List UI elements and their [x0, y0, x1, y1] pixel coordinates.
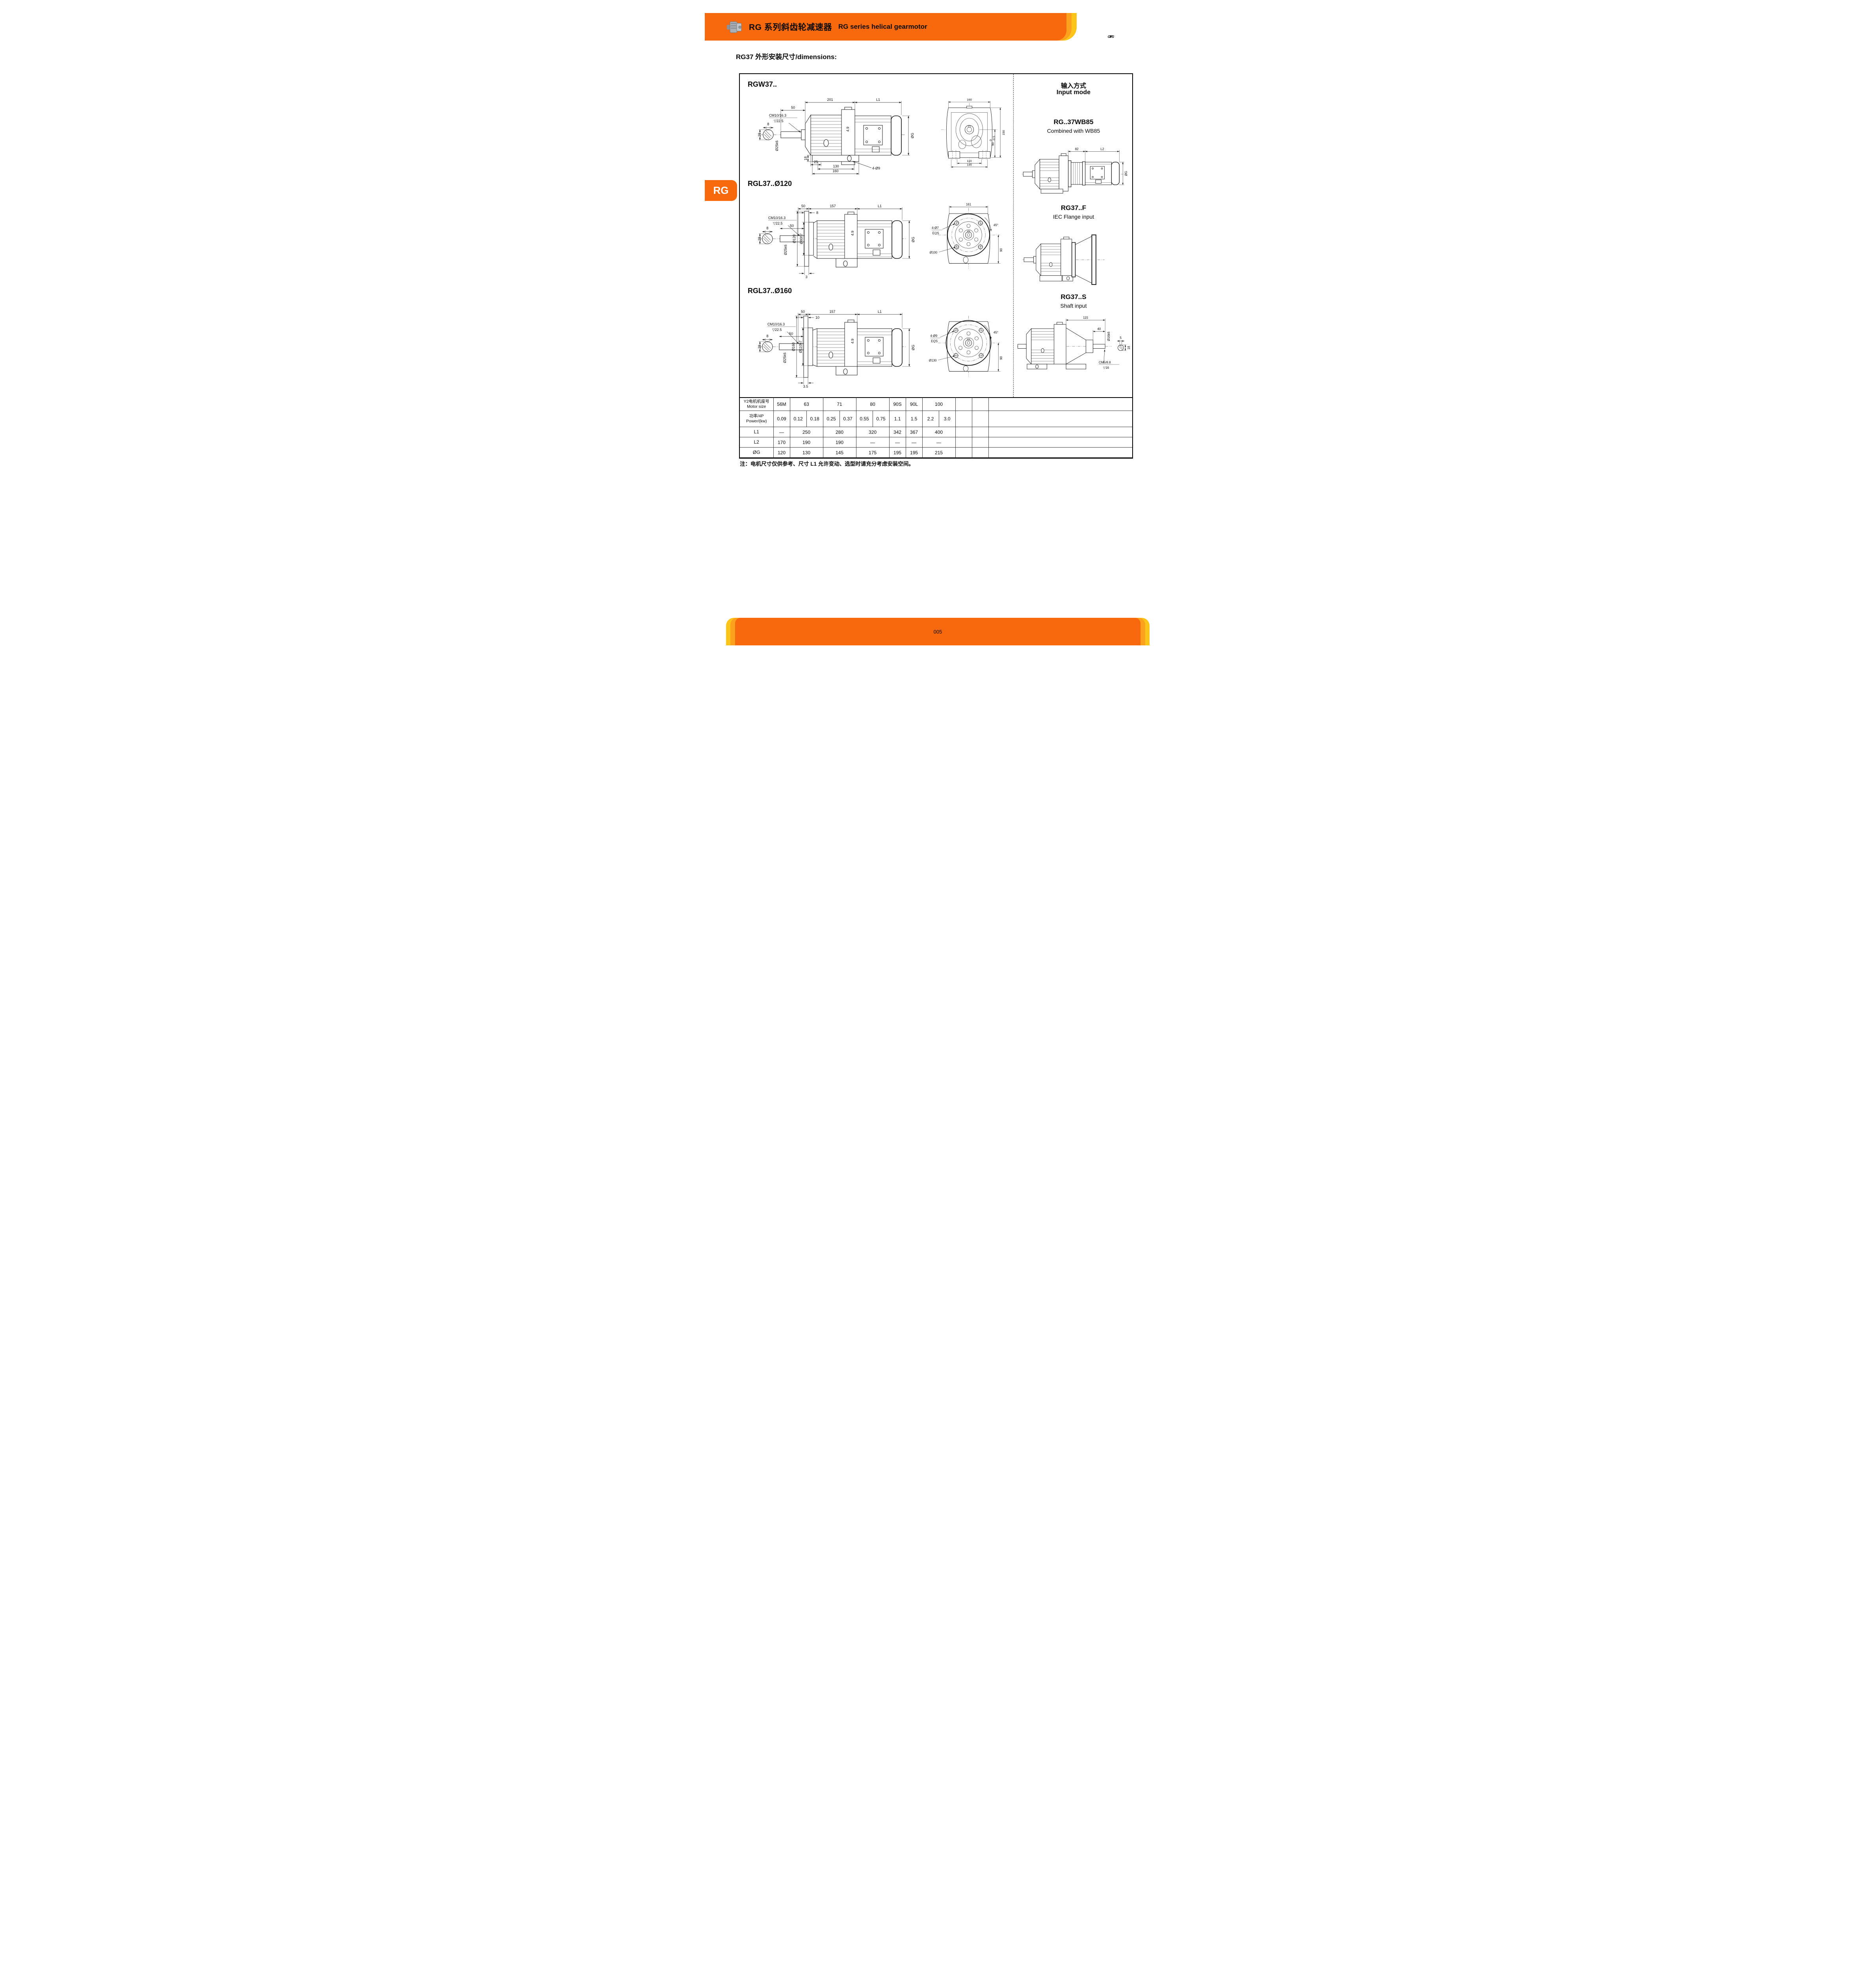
dim-90-tol-top: 0: [989, 139, 992, 141]
dim-4p9: 4.9: [846, 127, 850, 132]
table-cell: 0.75: [873, 411, 889, 427]
table-note: 注：电机尺寸仅供参考、尺寸 L1 允许变动、选型时请充分考虑安装空间。: [740, 459, 914, 467]
dim-L1: L1: [876, 98, 880, 102]
dim-eqs: EQS: [932, 232, 939, 235]
table-cell: [972, 427, 988, 437]
dim-angle: 45°: [994, 331, 998, 334]
dim-3p5: 3.5: [803, 385, 808, 388]
table-cell: 2.2: [922, 411, 939, 427]
dim-shaft-dia: Ø16k6: [1107, 331, 1111, 341]
table-cell: 0.09: [773, 411, 790, 427]
dim-lip8: 8: [816, 211, 818, 215]
table-cell: [955, 437, 972, 448]
dim-hub-dia: Ø110h7: [799, 340, 802, 353]
dim-201: 201: [827, 98, 833, 102]
dim-key-height: 28: [758, 237, 762, 241]
shaft-code: RG37..S: [1014, 293, 1133, 301]
table-cell: 0.12: [790, 411, 806, 427]
dim-angle: 45°: [994, 223, 998, 227]
table-cell: 195: [889, 448, 906, 458]
header-band-amber: RG 系列斜齿轮减速器 RG series helical gearmotor: [705, 13, 1072, 41]
table-cell: [955, 411, 972, 427]
table-cell: —: [922, 437, 955, 448]
dim-key-width: 8: [767, 122, 769, 126]
dim-90: 90: [999, 248, 1003, 252]
dimensions-drawing-box: RGW37.. RGL37..Ø120 RGL37..Ø160: [739, 73, 1133, 398]
table-cell: 0.25: [823, 411, 840, 427]
dim-150: 150: [1002, 130, 1005, 135]
dim-50-top: 50: [801, 204, 805, 208]
table-cell: 145: [823, 448, 856, 458]
dim-shaft-dia: Ø25k6: [775, 141, 779, 151]
table-cell: —: [856, 437, 889, 448]
dim-holes: 4-Ø9: [872, 166, 880, 170]
dim-key-width: 8: [766, 334, 768, 338]
dim-110: 110: [967, 159, 971, 163]
table-cell: [972, 411, 988, 427]
dim-shaft-dia: Ø25k6: [784, 245, 788, 255]
table-cell: [972, 437, 988, 448]
dim-og: ØG: [911, 345, 915, 350]
table-row-power: 功率/4PPower/(kw)0.090.120.180.250.370.550…: [739, 411, 1133, 427]
table-cell: 71: [823, 398, 856, 411]
product-photo-icon: [725, 19, 743, 35]
page-number: 005: [934, 629, 942, 635]
dim-eqs: EQS: [931, 340, 938, 343]
table-cell: 90L: [906, 398, 922, 411]
dim-82: 82: [1075, 147, 1079, 151]
table-cell: 280: [823, 427, 856, 437]
row-label-L2: L2: [739, 437, 773, 448]
dim-145: 145: [967, 163, 972, 166]
rgl160-front-drawing: 4-Ø9 EQS Ø130 45° 90: [928, 309, 1009, 383]
table-row-motor: Y2电机机座号Motor size56M63718090S90L100: [739, 398, 1133, 411]
dim-holes: 4-Ø9: [930, 334, 937, 338]
dim-flange-dia: Ø120: [792, 234, 796, 243]
table-cell: [972, 398, 988, 411]
dim-50: 50: [791, 106, 795, 110]
table-cell: 190: [823, 437, 856, 448]
dim-161: 161: [966, 203, 971, 206]
table-cell: 100: [922, 398, 955, 411]
table-cell: 250: [790, 427, 823, 437]
dim-bolt-circle: Ø100: [930, 251, 938, 255]
dim-115: 115: [1083, 316, 1088, 320]
rgl120-label: RGL37..Ø120: [748, 180, 792, 188]
wb85-code: RG..37WB85: [1014, 118, 1133, 126]
table-cell: 0.18: [806, 411, 823, 427]
input-mode-title-en: Input mode: [1014, 89, 1133, 96]
flange-code: RG37..F: [1014, 204, 1133, 212]
table-cell: 400: [922, 427, 955, 437]
dim-key-height: 28: [758, 345, 762, 349]
dim-157: 157: [829, 310, 835, 314]
table-cell: [972, 448, 988, 458]
table-cell: [955, 427, 972, 437]
column-divider: [1013, 74, 1014, 397]
row-label-L1: L1: [739, 427, 773, 437]
table-cell: [955, 448, 972, 458]
table-cell: 342: [889, 427, 906, 437]
catalog-page: RG 系列斜齿轮减速器 RG series helical gearmotor …: [704, 0, 1172, 663]
table-cell: [988, 411, 1133, 427]
table-cell: 195: [906, 448, 922, 458]
table-cell: [955, 398, 972, 411]
table-cell: 1.5: [906, 411, 922, 427]
dim-50-shaft: 50: [789, 332, 793, 336]
header-bar: RG 系列斜齿轮减速器 RG series helical gearmotor: [705, 13, 1066, 41]
table-cell: [988, 437, 1133, 448]
dim-og: ØG: [911, 237, 915, 242]
dim-key-width: 8: [766, 226, 768, 230]
table-cell: 320: [856, 427, 889, 437]
rgl120-front-drawing: 161 4-Ø7 EQS Ø100 45° 90: [928, 201, 1009, 275]
table-cell: 1.1: [889, 411, 906, 427]
table-cell: [988, 448, 1133, 458]
dimensions-table: Y2电机机座号Motor size56M63718090S90L100功率/4P…: [739, 397, 1133, 459]
page-title-en: RG series helical gearmotor: [838, 23, 927, 31]
table-cell: 80: [856, 398, 889, 411]
company-logo: GTPG: [1106, 20, 1161, 43]
series-side-tab: RG: [705, 180, 737, 201]
table-cell: 0.55: [856, 411, 873, 427]
dim-cm: CM10/16.3: [767, 322, 785, 326]
dim-key18: 18: [1127, 346, 1131, 350]
dim-cm: CM5/8.8: [1099, 361, 1111, 364]
dim-L1: L1: [878, 204, 882, 208]
dim-og: ØG: [910, 133, 914, 138]
row-label-motor: Y2电机机座号Motor size: [739, 398, 773, 411]
flange-input-drawing: [1022, 229, 1126, 289]
dim-50-top: 50: [801, 310, 805, 314]
table-cell: 170: [773, 437, 790, 448]
page-title-zh: RG 系列斜齿轮减速器: [749, 21, 832, 33]
shaft-desc: Shaft input: [1014, 303, 1133, 309]
dim-L1: L1: [878, 310, 882, 314]
dim-40: 40: [1097, 327, 1101, 331]
table-cell: 367: [906, 427, 922, 437]
dim-130: 130: [833, 164, 839, 168]
flange-desc: IEC Flange input: [1014, 214, 1133, 220]
table-cell: 90S: [889, 398, 906, 411]
dim-4p9: 4.9: [851, 339, 854, 344]
rgl160-side-drawing: 8 28 50 157 L1 CM10/16.3 ▽22.5 10 Ø160 Ø…: [758, 307, 923, 390]
dim-depth: ▽16: [1103, 366, 1109, 370]
header-band-yellow: RG 系列斜齿轮减速器 RG series helical gearmotor: [705, 13, 1077, 41]
dim-50-shaft: 50: [790, 224, 794, 228]
rgw37-label: RGW37..: [748, 80, 777, 89]
table-cell: [988, 427, 1133, 437]
dim-160: 160: [967, 98, 972, 102]
dim-lip10: 10: [815, 316, 819, 320]
footer-bar: 005: [735, 618, 1140, 645]
rgl160-label: RGL37..Ø160: [748, 287, 792, 295]
table-cell: 190: [790, 437, 823, 448]
dim-90: 90: [991, 142, 995, 146]
table-cell: 0.37: [840, 411, 856, 427]
wb85-desc: Combined with WB85: [1014, 128, 1133, 134]
dim-4p9: 4.9: [851, 231, 854, 236]
table-cell: 63: [790, 398, 823, 411]
dim-flange-dia: Ø160: [791, 342, 795, 351]
series-side-tab-label: RG: [713, 184, 729, 197]
wb85-drawing: 82 L2 ØG: [1020, 146, 1127, 199]
table-row-L2: L2170190190————: [739, 437, 1133, 448]
table-row-OG: ØG120130145175195195215: [739, 448, 1133, 458]
dim-160: 160: [832, 169, 838, 173]
dim-shaft-dia: Ø25k6: [783, 353, 787, 363]
dim-157: 157: [830, 204, 836, 208]
rgw37-front-drawing: 160 150 90 0 -0.5 110 145: [929, 97, 1010, 169]
dimension-table-body: Y2电机机座号Motor size56M63718090S90L100功率/4P…: [739, 398, 1133, 458]
dim-18: 18: [804, 156, 808, 160]
table-cell: —: [773, 427, 790, 437]
dim-hub-dia: Ø80h7: [799, 233, 803, 244]
rgl120-side-drawing: 8 28 50 157 L1 CM10/16.3 ▽22.5 8 Ø120 Ø8…: [758, 199, 923, 282]
row-label-power: 功率/4PPower/(kw): [739, 411, 773, 427]
dim-L2: L2: [1101, 147, 1104, 151]
dim-cm: CM10/16.3: [768, 216, 786, 220]
dim-cm: CM10/16.3: [769, 113, 786, 117]
footer-band-amber: 005: [730, 618, 1145, 645]
shaft-input-drawing: 115 40 Ø16k6 CM5/8.8 ▽16 5 18: [1016, 314, 1131, 376]
table-cell: 120: [773, 448, 790, 458]
dim-depth: ▽22.5: [772, 328, 782, 332]
dim-key-height: 28: [758, 133, 762, 137]
dim-25: 25: [814, 160, 818, 164]
table-cell: 175: [856, 448, 889, 458]
dim-og: ØG: [1124, 171, 1127, 176]
rgw37-side-drawing: 8 28 201 L1 50 CM10/16.3 ▽22.5 Ø25k6 4.9…: [758, 95, 923, 176]
row-label-OG: ØG: [739, 448, 773, 458]
dim-90: 90: [999, 356, 1003, 360]
table-cell: [988, 398, 1133, 411]
footer-band-yellow: 005: [726, 618, 1150, 645]
dim-3: 3: [805, 275, 807, 279]
dim-depth: ▽22.5: [773, 221, 782, 225]
section-subtitle: RG37 外形安装尺寸/dimensions:: [736, 51, 837, 61]
table-cell: 56M: [773, 398, 790, 411]
dim-key5: 5: [1120, 336, 1122, 340]
table-cell: 130: [790, 448, 823, 458]
dim-holes: 4-Ø7: [932, 226, 939, 230]
company-logo-text: GTPG: [1107, 35, 1114, 39]
dim-bolt-circle: Ø130: [929, 359, 937, 362]
dim-depth: ▽22.5: [774, 119, 783, 123]
dim-90-tol-bot: -0.5: [992, 136, 996, 141]
table-cell: —: [889, 437, 906, 448]
input-mode-title-zh: 输入方式: [1014, 80, 1133, 90]
table-cell: —: [906, 437, 922, 448]
table-row-L1: L1—250280320342367400: [739, 427, 1133, 437]
table-cell: 3.0: [939, 411, 955, 427]
table-cell: 215: [922, 448, 955, 458]
